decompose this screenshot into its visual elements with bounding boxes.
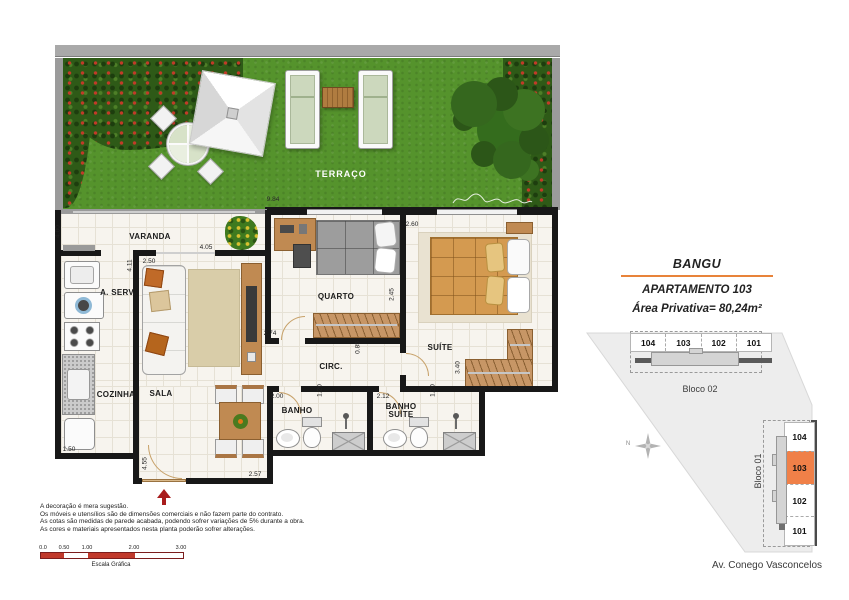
kitchen-counter — [62, 354, 95, 415]
side-table — [322, 87, 354, 108]
bloco02-building — [689, 348, 703, 354]
suite-shelf — [506, 222, 533, 234]
wall-step — [267, 450, 273, 484]
artist-signature — [450, 191, 535, 207]
double-bed-suite — [430, 237, 518, 315]
dim-circ-width: 2.74 — [256, 330, 284, 337]
scale-tick: 0.50 — [59, 545, 70, 551]
parasol — [189, 70, 276, 157]
wall-quarto-bottom — [265, 338, 279, 344]
floor-plan-sheet: TERRAÇO — [0, 0, 849, 600]
scale-tick: 3.00 — [176, 545, 187, 551]
scale-tick: 2.00 — [129, 545, 140, 551]
wall-suite-bottom — [479, 386, 558, 392]
scale-tick: 1.00 — [82, 545, 93, 551]
suite-closet — [507, 329, 533, 361]
disclaimer-line: As cores e materiais apresentados nesta … — [40, 526, 305, 534]
potted-plant — [225, 216, 258, 250]
dim-cozinha-width: 1.50 — [57, 446, 81, 453]
bloco02-label: Bloco 02 — [660, 384, 740, 394]
bloco01-building — [772, 454, 777, 466]
bathroom-sink — [276, 429, 300, 448]
disclaimer: A decoração é mera sugestão. Os móveis e… — [40, 503, 305, 533]
room-label-varanda: VARANDA — [115, 233, 185, 241]
accent-rule — [621, 275, 773, 277]
wall-sala-top — [215, 250, 271, 256]
dim-varanda-width: 4.05 — [191, 244, 221, 251]
entrance-door-leaf — [142, 479, 186, 482]
stove — [64, 322, 100, 351]
apartment-title: APARTAMENTO 103 — [597, 284, 797, 296]
shower-box — [332, 432, 365, 451]
wall-kitchen-sala — [133, 250, 139, 484]
dim-terrace-width: 9.84 — [253, 196, 293, 203]
unit-cell: 101 — [736, 334, 771, 351]
pillow — [507, 239, 530, 275]
room-label-quarto: QUARTO — [301, 293, 371, 301]
dim-varanda-left: 4.00 — [55, 218, 62, 246]
dim-sala-height: 4.55 — [142, 450, 149, 478]
pillow — [485, 242, 505, 272]
wall-quarto-suite — [400, 210, 406, 344]
street-label: Av. Conego Vasconcelos — [685, 560, 849, 571]
project-title: BANGU — [597, 257, 797, 271]
site-plan: 104 103 102 101 Bloco 02 104 103 102 101… — [585, 328, 849, 580]
scale-bar: 0.0 0.50 1.00 2.00 3.00 Escala Gráfica — [40, 545, 200, 568]
rug — [188, 269, 240, 367]
pillow — [507, 277, 530, 313]
dim-banho-width: 2.00 — [265, 393, 289, 400]
dim-suite-top: 2.60 — [397, 221, 427, 228]
unit-cell: 104 — [785, 423, 814, 451]
wall-bath-top — [401, 386, 485, 392]
pillow — [374, 247, 397, 274]
room-label-banho-suite: BANHO SUÍTE — [380, 403, 422, 419]
sun-lounger — [285, 70, 320, 149]
dim-sala-top: 2.50 — [134, 258, 164, 265]
wall-sala-top — [139, 250, 156, 256]
dining-chair — [242, 439, 264, 458]
dim-suite-closet: 3.40 — [455, 354, 462, 382]
dim-circ-height: 0.85 — [355, 334, 362, 362]
unit-cell: 104 — [631, 334, 665, 351]
dining-chair — [215, 439, 237, 458]
toilet — [409, 417, 429, 448]
private-area: Área Privativa= 80,24m² — [597, 303, 797, 315]
room-label-suite: SUÍTE — [410, 344, 470, 352]
room-label-circ: CIRC. — [306, 363, 356, 371]
wall-left — [55, 210, 61, 459]
disclaimer-line: As cotas são medidas de parede acabada, … — [40, 518, 305, 526]
bloco01-label: Bloco 01 — [753, 449, 763, 493]
scale-bar-label: Escala Gráfica — [40, 562, 182, 568]
pillow — [374, 221, 398, 248]
dim-sala-bottom: 2.57 — [241, 471, 269, 478]
unit-cell: 101 — [785, 516, 814, 544]
wall-bath-bottom — [267, 450, 485, 456]
compass-north-label: N — [623, 441, 633, 447]
tree — [451, 81, 497, 127]
wall-sala-bottom — [186, 478, 273, 484]
terrace-top-wall — [55, 45, 560, 57]
window-quarto — [307, 209, 382, 215]
bloco01-building — [776, 436, 787, 524]
disclaimer-line: Os móveis e utensílios são de dimensões … — [40, 511, 305, 519]
dim-quarto-height: 2.45 — [389, 281, 396, 309]
bloco01-building — [772, 490, 777, 502]
terrace-left-wall — [55, 58, 63, 210]
bathroom-sink — [383, 429, 407, 448]
varanda-glass — [73, 211, 255, 213]
room-label-aserv: A. SERV. — [88, 289, 148, 297]
terrace-right-wall — [552, 58, 560, 210]
sofa-cushion — [144, 268, 164, 288]
shower-box — [443, 432, 476, 451]
shower-head — [345, 417, 347, 429]
bloco01-building — [779, 524, 785, 530]
scale-ticks: 0.0 0.50 1.00 2.00 3.00 — [40, 545, 200, 552]
laundry-sink — [64, 261, 100, 289]
unit-cell: 102 — [785, 484, 814, 516]
room-label-banho: BANHO — [272, 407, 322, 415]
wall-bump — [63, 245, 95, 251]
toilet — [302, 417, 322, 448]
wall-sala-bottom — [133, 478, 142, 484]
bloco02-building — [651, 352, 739, 366]
bloco01-units: 104 103 102 101 — [784, 422, 815, 546]
room-label-terraco: TERRAÇO — [301, 169, 381, 179]
wall-quarto-left — [265, 210, 271, 344]
window-suite — [437, 209, 517, 215]
varanda-door-glass — [156, 252, 215, 254]
entrance-arrow-icon — [157, 489, 171, 498]
unit-cell: 102 — [701, 334, 736, 351]
wall-right — [552, 210, 558, 392]
bedroom-tv — [293, 244, 311, 268]
sun-lounger — [358, 70, 393, 149]
room-label-sala: SALA — [131, 390, 191, 398]
dim-banho-suite-width: 2.12 — [371, 393, 395, 400]
wall-suite-door-jamb — [400, 344, 406, 353]
shower-head — [455, 417, 457, 429]
pillow — [485, 275, 505, 305]
info-panel: BANGU APARTAMENTO 103 Área Privativa= 80… — [597, 257, 797, 315]
sofa-cushion — [149, 290, 171, 312]
scale-bar-graphic — [40, 552, 184, 559]
dim-banho-suite-height: 1.20 — [430, 378, 437, 404]
suite-closet — [465, 359, 533, 387]
dim-banho-height: 1.20 — [317, 378, 324, 404]
dim-aserv-height: 4.11 — [127, 252, 134, 280]
unit-cell-highlighted: 103 — [785, 451, 814, 484]
dining-table — [219, 402, 261, 440]
wall-kitchen-bottom — [55, 453, 139, 459]
disclaimer-line: A decoração é mera sugestão. — [40, 503, 305, 511]
tv-cabinet — [241, 263, 262, 375]
wall-banho-suite-right — [479, 386, 485, 456]
scale-tick: 0.0 — [39, 545, 47, 551]
apartment-floor-plan: TERRAÇO — [55, 45, 560, 507]
